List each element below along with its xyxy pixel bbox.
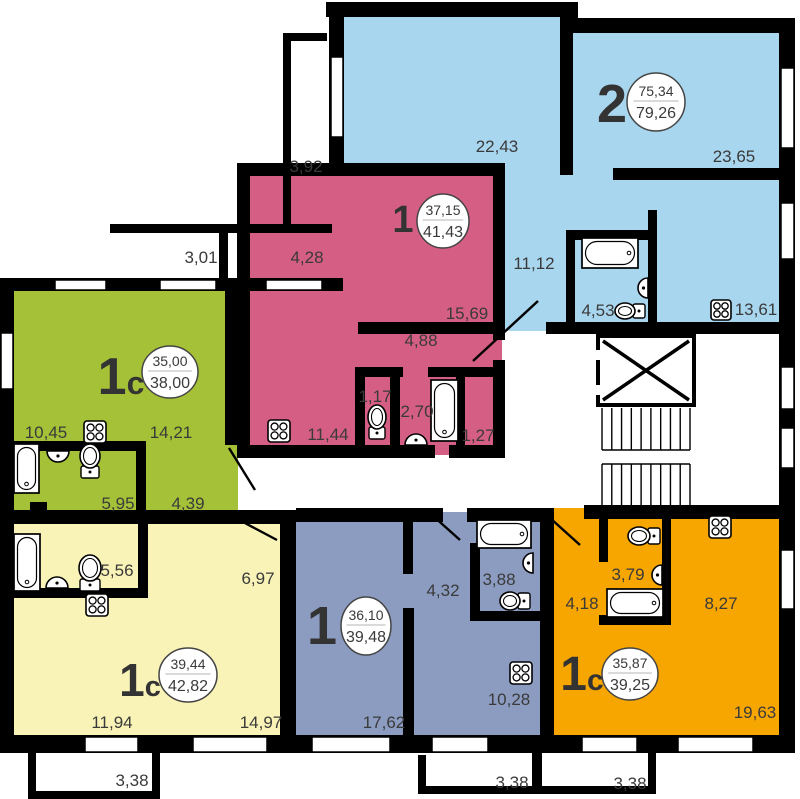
dim-label: 5,56 [100, 561, 133, 580]
balcony-wall [532, 753, 542, 794]
sink-drain [642, 286, 645, 289]
window [781, 428, 794, 468]
wall [546, 322, 795, 334]
elevator-door-notch [594, 385, 603, 395]
apt-1room-pink-type-label: 1 [392, 199, 413, 241]
stove-icon [84, 421, 106, 443]
wall [584, 505, 779, 519]
toilet-tank-dot [523, 600, 526, 603]
sink-drain [56, 454, 59, 457]
dim-label: 13,61 [735, 300, 778, 319]
wall [560, 18, 795, 33]
toilet-tank-dot [638, 310, 641, 313]
window [678, 737, 753, 752]
wall [326, 2, 578, 17]
window [781, 68, 794, 148]
dim-label: 3,38 [115, 771, 148, 790]
balcony-wall [648, 753, 656, 794]
dim-label: 14,21 [150, 423, 193, 442]
window [432, 737, 488, 752]
toilet-tank-dot [89, 584, 92, 587]
dim-label: 2,70 [400, 402, 433, 421]
apt-1room-slate-living-area: 36,10 [348, 607, 383, 623]
wall [428, 367, 505, 377]
wall [470, 543, 480, 617]
wall [599, 505, 608, 562]
sink-drain [527, 561, 530, 564]
apt-1room-pink-total-area: 41,43 [423, 224, 463, 241]
wall [493, 175, 505, 340]
apt-1c-orange-total-area: 39,25 [610, 677, 650, 694]
dim-label: 4,39 [171, 494, 204, 513]
window [331, 57, 343, 137]
wall [355, 367, 365, 445]
dim-label: 11,12 [513, 254, 554, 273]
dim-label: 4,32 [426, 581, 459, 600]
wall [138, 518, 148, 598]
wall [470, 611, 554, 621]
dim-label: 3,88 [482, 570, 515, 589]
dim-label: 4,28 [290, 248, 323, 267]
dim-label: 15,69 [446, 304, 489, 323]
apt-1room-slate-type-label: 1 [307, 596, 337, 656]
dim-label: 3,92 [289, 157, 322, 176]
stove-icon [86, 594, 108, 616]
apt-1room-slate-total-area: 39,48 [346, 629, 386, 646]
balcony-wall [28, 791, 160, 799]
wall [237, 445, 435, 458]
apt-2room-blue-type-label: 2 [597, 74, 627, 134]
wall [648, 210, 657, 325]
apt-2room-blue-area-badge [627, 73, 685, 131]
dim-label: 10,28 [488, 690, 531, 709]
dim-label: 1,17 [358, 387, 391, 406]
dim-label: 14,97 [240, 713, 283, 732]
window [55, 280, 106, 290]
wall [403, 516, 413, 574]
floor-plan: 3,923,014,2822,4323,6511,124,5313,6115,6… [0, 0, 800, 799]
window [160, 280, 216, 290]
dim-label: 19,63 [734, 703, 777, 722]
window [266, 280, 322, 290]
wall [237, 163, 505, 176]
window [1, 333, 13, 389]
window [85, 737, 138, 752]
elevator-door-notch [594, 350, 603, 360]
wall [540, 508, 554, 753]
dim-label: 5,95 [101, 494, 134, 513]
apt-2room-blue-total-area: 79,26 [636, 105, 676, 122]
dim-label: 10,45 [25, 423, 68, 442]
apt-1c-yellow-living-area: 39,44 [170, 656, 205, 672]
balcony-wall [152, 753, 160, 798]
stove-icon [268, 420, 290, 442]
wall [237, 163, 250, 458]
wall [560, 17, 573, 175]
dim-label: 11,44 [307, 425, 348, 444]
dim-label: 17,62 [363, 713, 406, 732]
apt-1room-slate-area-badge [341, 597, 391, 655]
dim-label: 3,01 [184, 248, 217, 267]
wall [136, 441, 146, 513]
sink-drain [414, 438, 417, 441]
dim-label: 6,97 [241, 569, 274, 588]
dim-label: 8,27 [704, 594, 737, 613]
window [582, 737, 637, 752]
toilet-tank-dot [653, 535, 656, 538]
sink-drain [55, 581, 58, 584]
apt-2room-blue-living-area: 75,34 [638, 83, 673, 99]
wall [449, 445, 505, 458]
toilet-tank-dot [89, 471, 92, 474]
bathtub-icon [582, 238, 638, 268]
window [781, 550, 794, 609]
window [312, 737, 390, 752]
stove-icon [709, 516, 731, 538]
balcony-wall [418, 755, 426, 790]
apt-1c-green-living-area: 35,00 [152, 353, 187, 369]
wall [613, 168, 779, 180]
dim-label: 3,38 [613, 774, 646, 793]
toilet-tank-dot [376, 432, 379, 435]
apt-1c-yellow-total-area: 42,82 [168, 678, 208, 695]
stove-icon [711, 300, 731, 320]
dim-label: 23,65 [713, 147, 756, 166]
dim-label: 11,94 [91, 713, 132, 732]
dim-label: 22,43 [476, 137, 519, 156]
wall [566, 230, 575, 325]
balcony-wall [283, 33, 327, 41]
balcony-wall [219, 230, 228, 288]
bathtub-icon [607, 589, 663, 617]
stove-icon [510, 662, 532, 684]
window [781, 367, 794, 409]
wall [225, 288, 237, 445]
dim-label: 4,88 [404, 331, 437, 350]
dim-label: 1,27 [461, 426, 494, 445]
balcony-wall [283, 33, 291, 233]
dim-label: 3,38 [495, 773, 528, 792]
apt-1c-orange-living-area: 35,87 [612, 655, 647, 671]
bathtub-icon [477, 520, 531, 548]
wall [280, 510, 296, 753]
wall [296, 508, 443, 522]
dim-label: 3,79 [611, 565, 644, 584]
floor-plan-canvas: 3,923,014,2822,4323,6511,124,5313,6115,6… [0, 0, 800, 799]
dim-label: 4,18 [565, 594, 598, 613]
apt-1room-pink-living-area: 37,15 [425, 202, 460, 218]
window [193, 737, 267, 752]
window [781, 203, 794, 259]
sink-drain [656, 573, 659, 576]
apt-1c-green-total-area: 38,00 [150, 375, 190, 392]
dim-label: 4,53 [581, 301, 614, 320]
